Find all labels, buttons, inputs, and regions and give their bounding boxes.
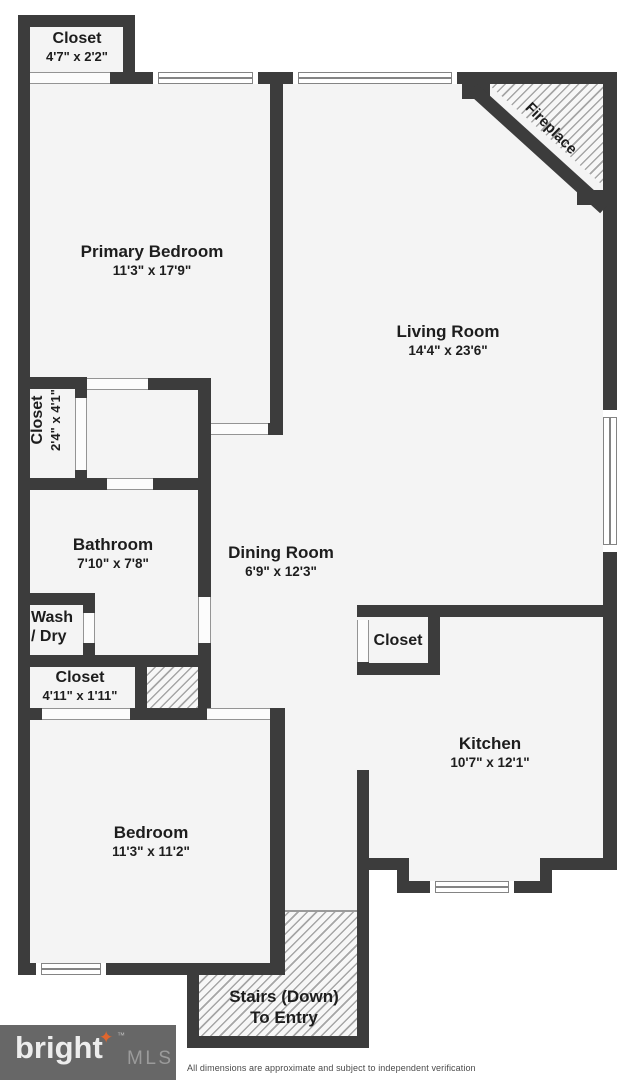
window-glass — [603, 417, 617, 545]
label-closet-hall: Closet 2'4" x 4'1" — [28, 370, 68, 470]
window-living-room-right — [603, 410, 617, 552]
room-name: Kitchen — [390, 733, 590, 754]
room-name: Wash — [31, 608, 91, 627]
wall-right-upper — [603, 72, 617, 410]
room-name: Closet — [27, 29, 127, 48]
wall-bathroom-top-a — [18, 478, 107, 490]
wall-kitchen-bottom-right — [540, 858, 617, 870]
room-dims: 11'3" x 11'2" — [51, 843, 251, 861]
window-living-room-top — [293, 72, 457, 84]
wall-closet-bedroom-top — [18, 655, 210, 667]
window-glass — [158, 72, 253, 84]
window-glass — [435, 881, 509, 893]
fireplace-corner-block-bottom — [577, 190, 617, 205]
wall-kitchen-bay-bottom-a — [397, 881, 430, 893]
label-closet-kitchen: Closet — [358, 631, 438, 650]
door-closet-top-left — [30, 72, 110, 84]
label-bedroom: Bedroom 11'3" x 11'2" — [51, 822, 251, 861]
logo-brand-text: bright — [15, 1030, 103, 1066]
disclaimer-text: All dimensions are approximate and subje… — [187, 1063, 476, 1073]
room-dims: 4'7" x 2'2" — [27, 48, 127, 65]
door-closet-hall — [75, 398, 87, 470]
room-name: Closet — [20, 668, 140, 687]
bright-mls-logo: bright ✦ ™ MLS — [0, 1025, 176, 1080]
door-bedroom — [207, 708, 270, 720]
wall-kitchen-top — [357, 605, 617, 617]
label-living-room: Living Room 14'4" x 23'6" — [348, 321, 548, 360]
label-closet-bedroom: Closet 4'11" x 1'11" — [20, 668, 140, 704]
wall-vestibule-right — [198, 378, 211, 488]
wall-bedroom-top-b — [130, 708, 207, 720]
room-dims: 6'9" x 12'3" — [181, 563, 381, 581]
label-closet-top-left: Closet 4'7" x 2'2" — [27, 29, 127, 65]
label-bathroom: Bathroom 7'10" x 7'8" — [38, 534, 188, 573]
room-name: Closet — [358, 631, 438, 650]
room-dims: 4'11" x 1'11" — [20, 687, 140, 704]
window-glass — [298, 72, 452, 84]
door-bathroom-vestibule — [107, 478, 153, 490]
room-name: Stairs (Down) — [199, 986, 369, 1007]
label-stairs: Stairs (Down) To Entry — [199, 986, 369, 1028]
window-kitchen-bay — [430, 881, 514, 893]
wall-closet-hall-corner-top — [75, 377, 87, 398]
room-dims: 10'7" x 12'1" — [390, 754, 590, 772]
wall-left-exterior — [18, 15, 30, 975]
floor-plan: Closet 4'7" x 2'2" Primary Bedroom 11'3"… — [0, 0, 628, 1080]
room-name: Bedroom — [51, 822, 251, 843]
window-glass — [41, 963, 101, 975]
logo-star-icon: ✦ — [99, 1028, 113, 1048]
room-dims: 2'4" x 4'1" — [47, 370, 64, 470]
label-kitchen: Kitchen 10'7" x 12'1" — [390, 733, 590, 772]
logo-trademark: ™ — [117, 1031, 125, 1040]
label-dining-room: Dining Room 6'9" x 12'3" — [181, 542, 381, 581]
room-dims: 14'4" x 23'6" — [348, 342, 548, 360]
window-bedroom-bottom — [36, 963, 106, 975]
utility-chase-hatch — [147, 667, 198, 708]
room-name: Closet — [28, 370, 47, 470]
label-wash-dry: Wash / Dry — [31, 608, 91, 646]
wall-top-a — [110, 72, 153, 84]
room-name: / Dry — [31, 627, 91, 646]
door-primary-bedroom — [211, 423, 268, 435]
wall-bedroom-right — [270, 708, 285, 975]
stairs-edge-line — [285, 910, 357, 912]
wall-closet-top-left-top — [18, 15, 135, 27]
room-name: Bathroom — [38, 534, 188, 555]
window-primary-bedroom-top — [153, 72, 258, 84]
room-name: Living Room — [348, 321, 548, 342]
logo-suffix-text: MLS — [127, 1048, 174, 1070]
room-name: Primary Bedroom — [52, 241, 252, 262]
label-primary-bedroom: Primary Bedroom 11'3" x 17'9" — [52, 241, 252, 280]
room-name: To Entry — [199, 1007, 369, 1028]
room-dims: 7'10" x 7'8" — [38, 555, 188, 573]
wall-right-lower — [603, 552, 617, 870]
door-vestibule-bedroom — [87, 378, 148, 390]
wall-washdry-top — [18, 593, 95, 605]
wall-stairs-bottom — [187, 1036, 369, 1048]
door-bathroom-hall — [198, 597, 211, 643]
room-name: Dining Room — [181, 542, 381, 563]
door-closet-bedroom — [42, 708, 130, 720]
wall-primary-bedroom-right — [270, 72, 283, 423]
wall-bedroom-top-a — [18, 708, 42, 720]
wall-primary-door-corner — [268, 423, 283, 435]
room-dims: 11'3" x 17'9" — [52, 262, 252, 280]
